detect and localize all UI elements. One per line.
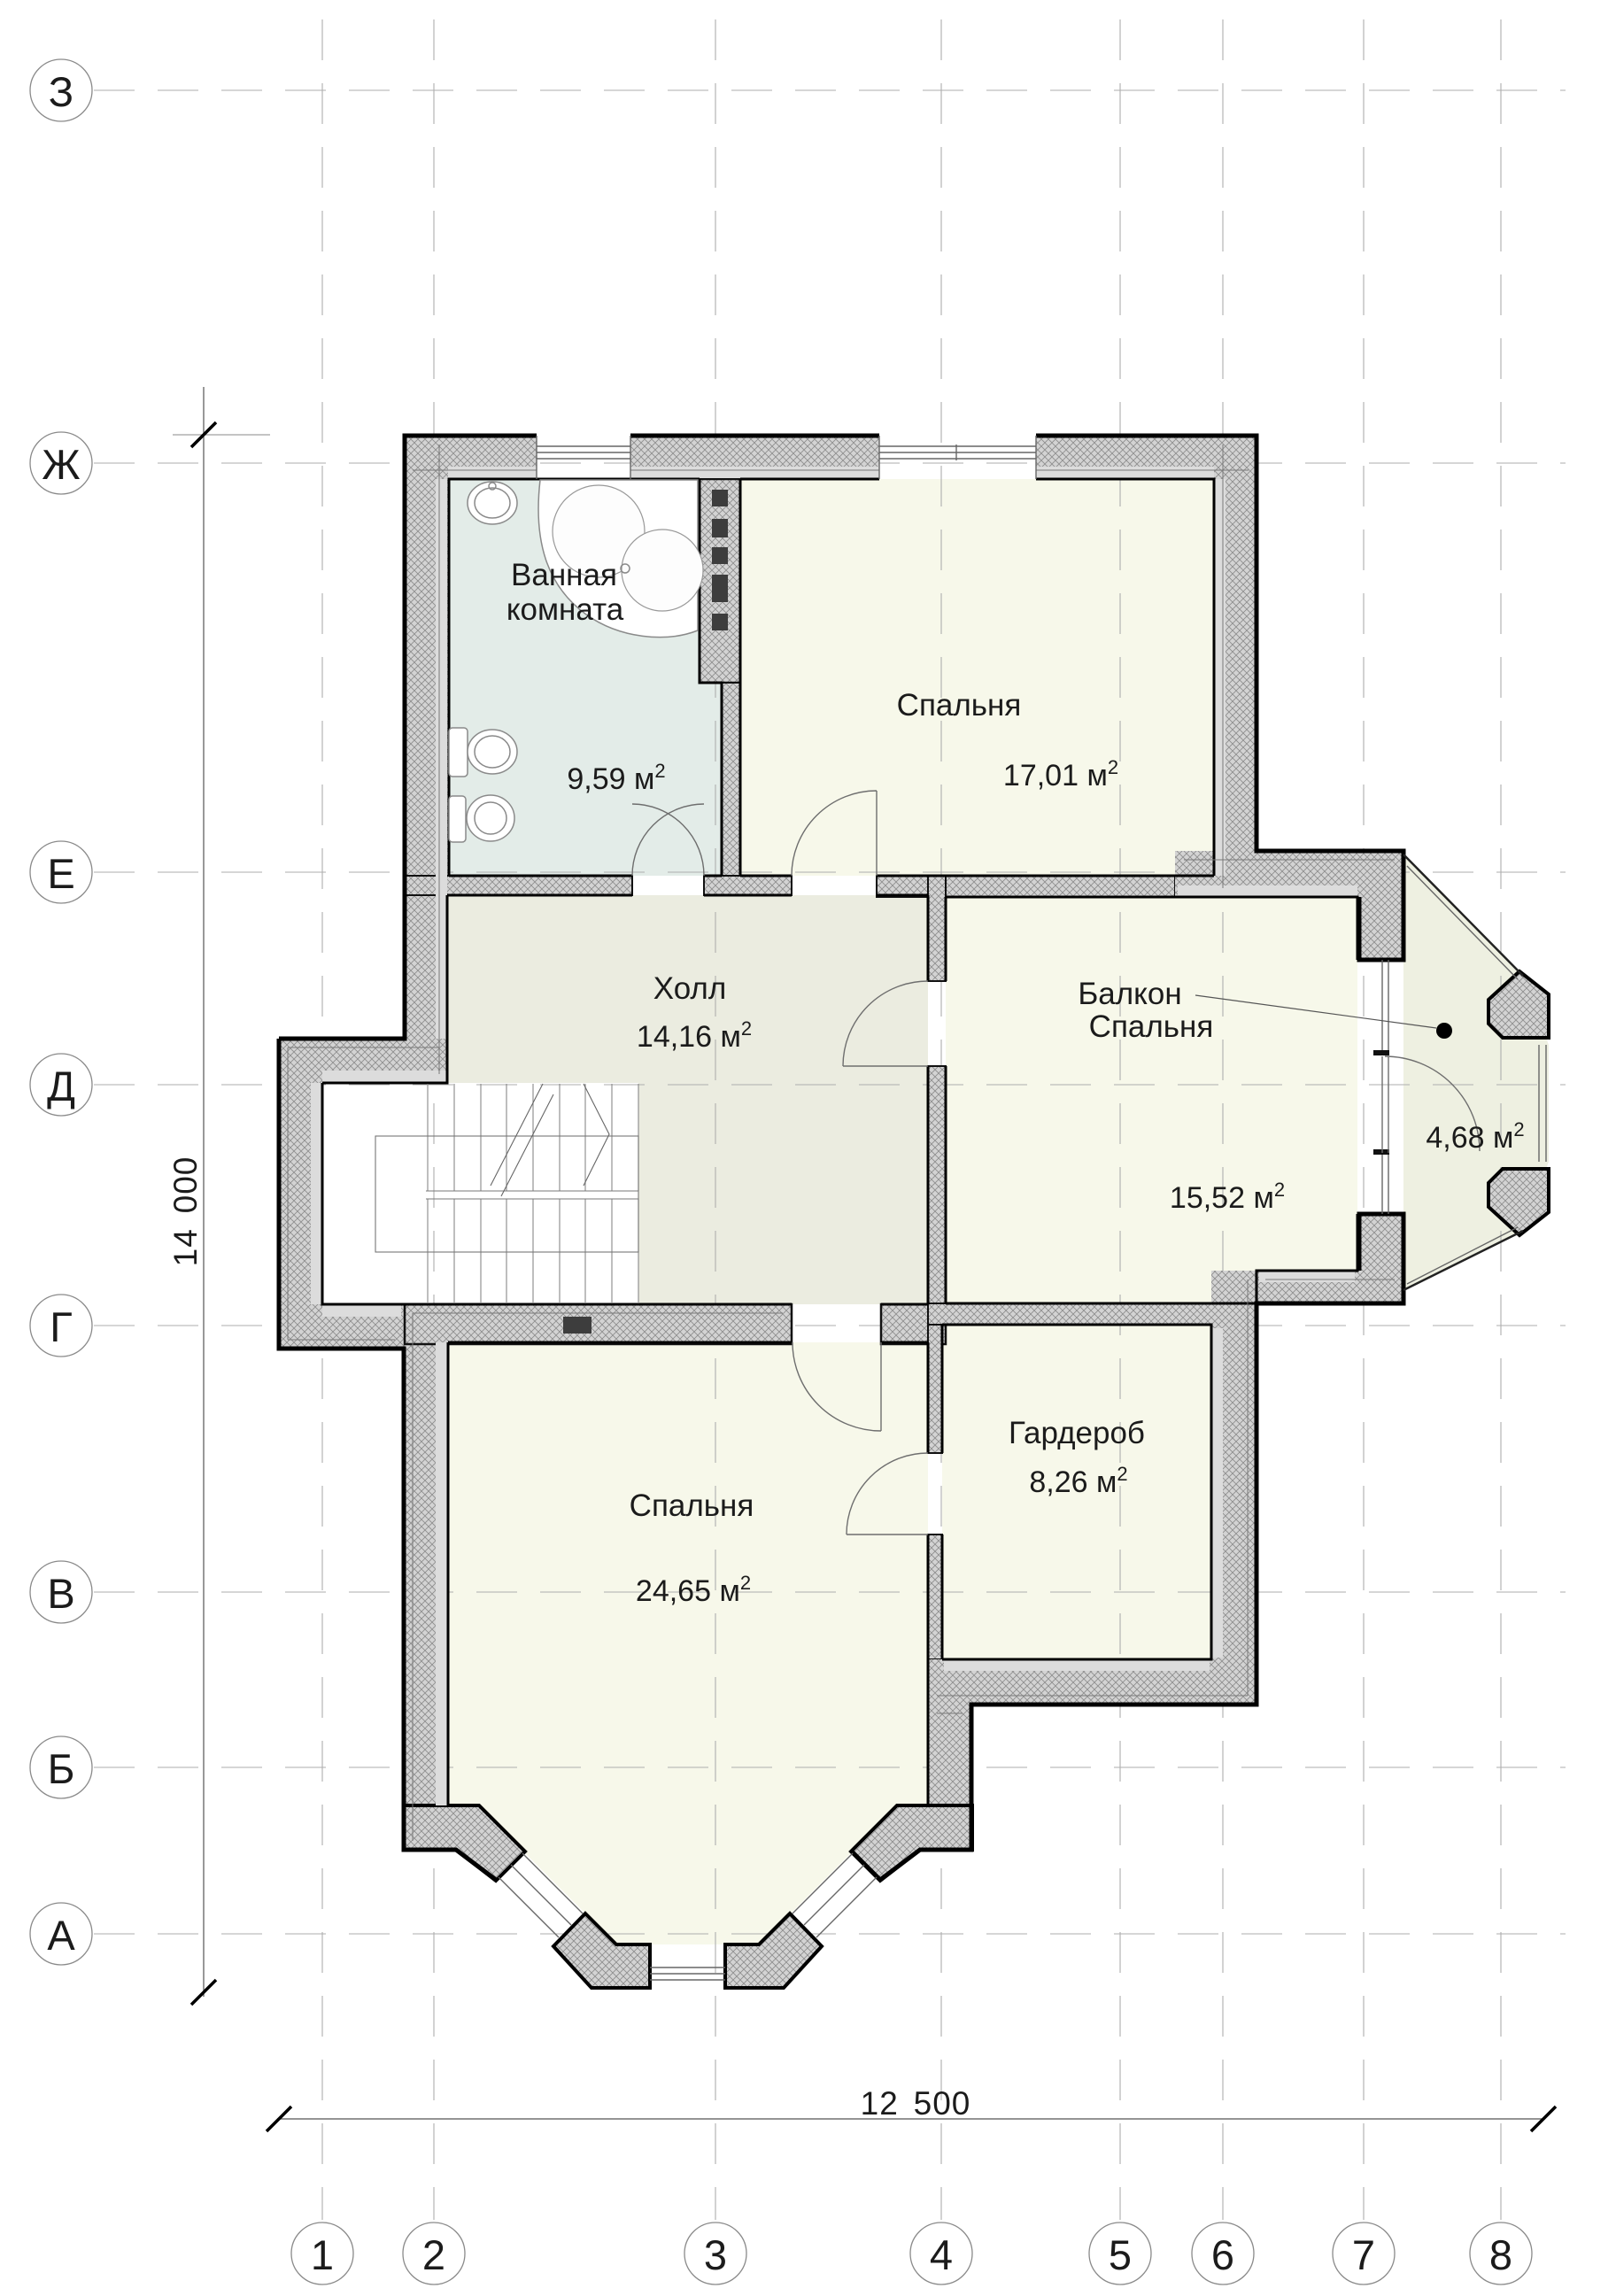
- svg-text:Балкон: Балкон: [1078, 977, 1181, 1011]
- svg-text:4: 4: [930, 2231, 953, 2278]
- svg-text:6: 6: [1211, 2231, 1234, 2278]
- svg-text:1: 1: [311, 2231, 334, 2278]
- svg-text:Спальня: Спальня: [1089, 1009, 1214, 1044]
- svg-text:5: 5: [1109, 2231, 1132, 2278]
- svg-text:8: 8: [1489, 2231, 1512, 2278]
- svg-text:З: З: [49, 68, 73, 115]
- svg-text:12 500: 12 500: [861, 2085, 971, 2122]
- svg-text:Спальня: Спальня: [897, 688, 1022, 723]
- svg-text:9,59 м2: 9,59 м2: [567, 760, 665, 796]
- svg-text:14,16 м2: 14,16 м2: [637, 1017, 752, 1054]
- svg-text:17,01 м2: 17,01 м2: [1003, 756, 1118, 792]
- svg-text:Холл: Холл: [653, 971, 727, 1006]
- svg-text:А: А: [47, 1912, 75, 1959]
- svg-text:Ванная: Ванная: [511, 558, 617, 592]
- svg-text:14 000: 14 000: [167, 1156, 204, 1267]
- svg-text:2: 2: [422, 2231, 445, 2278]
- svg-text:3: 3: [704, 2231, 727, 2278]
- svg-text:Гардероб: Гардероб: [1009, 1416, 1145, 1450]
- svg-text:Е: Е: [47, 850, 74, 897]
- svg-text:Г: Г: [50, 1303, 72, 1350]
- svg-text:В: В: [47, 1570, 74, 1617]
- svg-text:7: 7: [1352, 2231, 1375, 2278]
- svg-text:Д: Д: [47, 1063, 75, 1109]
- svg-text:8,26 м2: 8,26 м2: [1029, 1463, 1127, 1499]
- svg-text:4,68 м2: 4,68 м2: [1426, 1118, 1524, 1155]
- svg-text:комната: комната: [506, 592, 624, 627]
- svg-text:Спальня: Спальня: [630, 1488, 754, 1523]
- svg-text:Ж: Ж: [42, 441, 80, 488]
- svg-text:24,65 м2: 24,65 м2: [636, 1572, 751, 1608]
- svg-text:15,52 м2: 15,52 м2: [1170, 1179, 1285, 1215]
- svg-text:Б: Б: [48, 1745, 75, 1792]
